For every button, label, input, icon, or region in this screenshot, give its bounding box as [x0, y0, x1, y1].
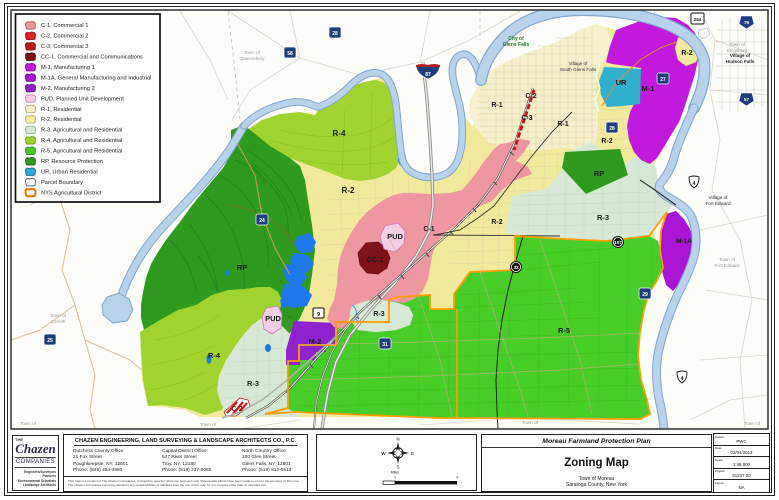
svg-text:57: 57: [744, 97, 750, 102]
svg-text:R-1, Residential: R-1, Residential: [41, 107, 81, 113]
svg-text:Village of: Village of: [569, 61, 589, 66]
svg-text:29: 29: [642, 292, 648, 298]
svg-text:87: 87: [425, 72, 431, 78]
svg-text:NYS Agricultural District: NYS Agricultural District: [41, 190, 102, 196]
svg-text:4: 4: [693, 181, 696, 187]
svg-text:S: S: [396, 465, 399, 470]
svg-text:W: W: [381, 451, 386, 456]
svg-text:27: 27: [660, 77, 666, 83]
svg-text:R-2, Residential: R-2, Residential: [41, 117, 81, 123]
svg-text:4: 4: [681, 376, 684, 382]
svg-text:197: 197: [614, 240, 622, 245]
svg-text:RP: RP: [237, 263, 247, 272]
svg-text:Hudson Falls: Hudson Falls: [726, 59, 755, 64]
svg-text:RP: RP: [594, 169, 604, 178]
svg-text:R-4: R-4: [333, 129, 346, 138]
svg-text:UR: UR: [616, 78, 627, 87]
svg-text:C-3: C-3: [521, 115, 532, 122]
svg-text:N: N: [396, 437, 399, 442]
svg-text:M-2: M-2: [309, 337, 322, 346]
svg-text:RP, Resource Protection: RP, Resource Protection: [41, 159, 103, 165]
svg-text:PUD: PUD: [265, 314, 281, 323]
svg-text:1: 1: [394, 476, 396, 480]
svg-text:Town of: Town of: [20, 421, 37, 426]
svg-text:M-1A: M-1A: [676, 238, 692, 245]
svg-text:25: 25: [47, 338, 53, 344]
svg-text:M-1A, General Manufacturing an: M-1A, General Manufacturing and Industri…: [41, 76, 151, 82]
svg-text:R-2: R-2: [681, 50, 692, 57]
svg-text:CC-1: CC-1: [367, 257, 383, 264]
svg-text:9: 9: [317, 312, 320, 318]
svg-text:R-5, Agricultural and Resident: R-5, Agricultural and Residential: [41, 149, 122, 155]
svg-text:Town of: Town of: [244, 50, 261, 55]
svg-text:Town of: Town of: [719, 257, 736, 262]
svg-text:28: 28: [332, 31, 338, 37]
svg-text:Fort Edward: Fort Edward: [714, 263, 739, 268]
svg-text:R-3: R-3: [247, 379, 259, 388]
svg-text:Town of: Town of: [522, 420, 539, 425]
svg-text:C-3, Commercial 3: C-3, Commercial 3: [41, 44, 88, 50]
svg-text:E: E: [411, 451, 414, 456]
svg-text:R-2: R-2: [342, 186, 355, 195]
svg-text:31: 31: [382, 342, 388, 348]
svg-text:R-3: R-3: [597, 213, 609, 222]
svg-text:R-3, Agricultural and Resident: R-3, Agricultural and Residential: [41, 128, 122, 134]
svg-text:R-2: R-2: [491, 219, 502, 226]
svg-text:R-4: R-4: [208, 351, 221, 360]
svg-text:CC-1, Commercial and Communica: CC-1, Commercial and Communications: [41, 55, 143, 61]
svg-text:C-2: C-2: [231, 406, 242, 413]
svg-text:Corinth: Corinth: [51, 319, 66, 324]
svg-text:Glens Falls: Glens Falls: [503, 42, 530, 48]
svg-text:PUD, Planned Unit Development: PUD, Planned Unit Development: [41, 96, 124, 102]
svg-text:South Glens Falls: South Glens Falls: [560, 67, 597, 72]
svg-text:PUD: PUD: [387, 232, 403, 241]
svg-text:Miles: Miles: [391, 471, 400, 475]
svg-text:Town of: Town of: [200, 422, 217, 427]
svg-text:C-1: C-1: [423, 226, 434, 233]
svg-text:Town of: Town of: [744, 421, 761, 426]
svg-text:58: 58: [287, 51, 293, 57]
svg-text:Queensbury: Queensbury: [239, 56, 265, 61]
svg-text:M-1: M-1: [642, 84, 655, 93]
svg-text:Fort Edward: Fort Edward: [705, 201, 730, 206]
svg-text:C-2: C-2: [525, 93, 536, 100]
svg-text:M-1, Manufacturing 1: M-1, Manufacturing 1: [41, 65, 95, 71]
svg-text:R-4, Agricultural and Resident: R-4, Agricultural and Residential: [41, 138, 122, 144]
svg-text:C-2, Commercial 2: C-2, Commercial 2: [41, 34, 88, 40]
svg-text:R-1: R-1: [557, 121, 568, 128]
svg-text:M-2, Manufacturing 2: M-2, Manufacturing 2: [41, 86, 95, 92]
svg-text:Village of: Village of: [709, 195, 729, 200]
svg-text:254: 254: [694, 17, 702, 22]
svg-text:R-3: R-3: [373, 311, 384, 318]
svg-text:32: 32: [513, 265, 519, 270]
svg-text:UR, Urban Residential: UR, Urban Residential: [41, 170, 98, 176]
svg-text:24: 24: [259, 218, 265, 224]
svg-text:76: 76: [744, 20, 750, 25]
svg-text:Parcel Boundary: Parcel Boundary: [41, 180, 83, 186]
svg-text:R-5: R-5: [558, 326, 570, 335]
svg-text:Village of: Village of: [730, 53, 751, 58]
svg-text:R-2: R-2: [601, 138, 612, 145]
svg-text:C-1, Commercial 1: C-1, Commercial 1: [41, 23, 88, 29]
svg-text:Town of: Town of: [729, 42, 746, 47]
svg-text:R-1: R-1: [491, 102, 502, 109]
svg-text:28: 28: [609, 126, 615, 132]
svg-text:4: 4: [456, 476, 458, 480]
svg-text:Town of: Town of: [50, 313, 67, 318]
